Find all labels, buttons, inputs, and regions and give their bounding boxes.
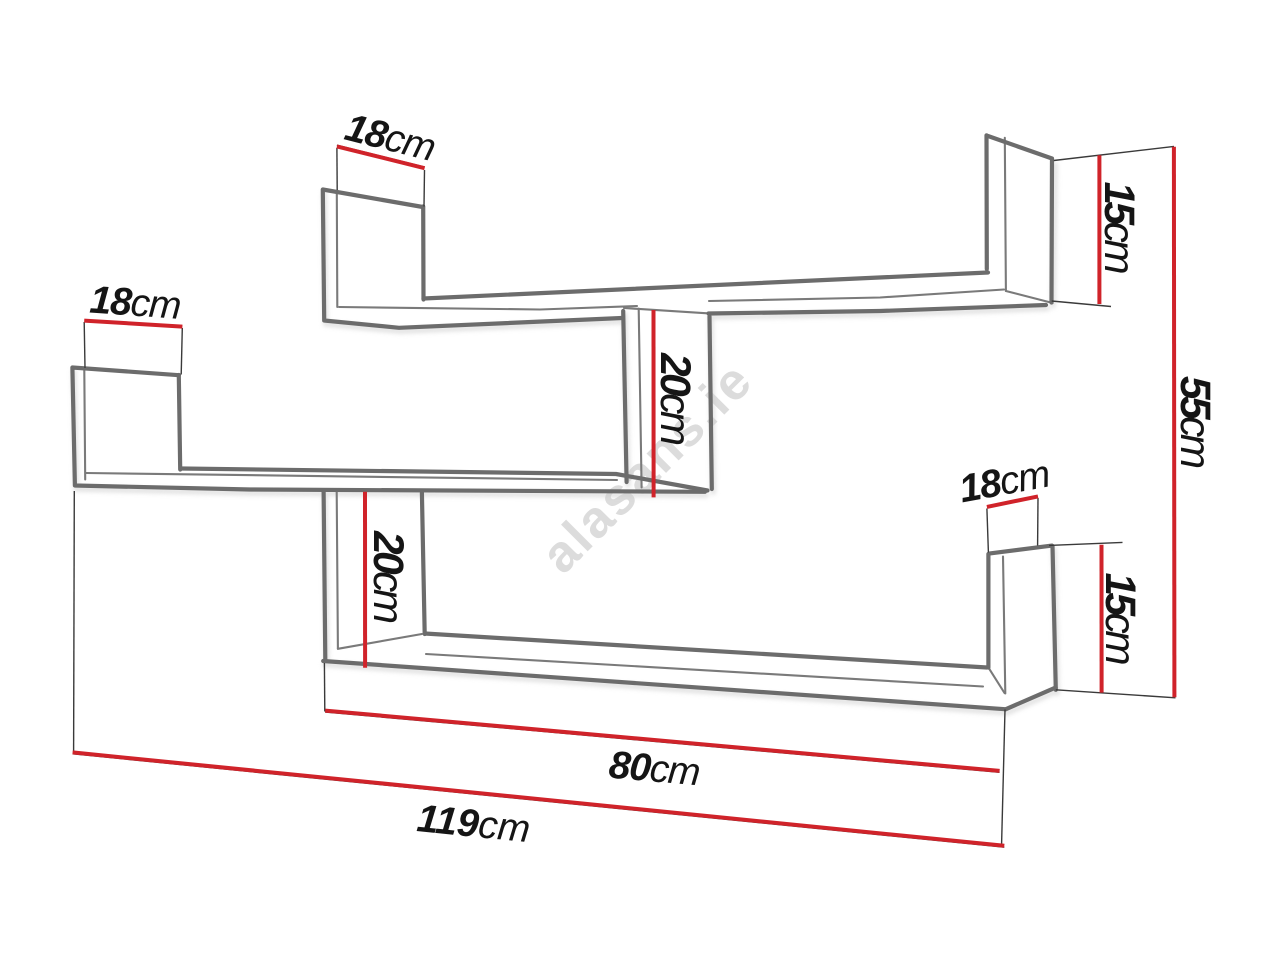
svg-text:15cm: 15cm	[1095, 182, 1142, 274]
svg-text:55cm: 55cm	[1171, 376, 1218, 468]
svg-text:20cm: 20cm	[364, 530, 411, 623]
svg-text:20cm: 20cm	[651, 352, 698, 445]
svg-text:18cm: 18cm	[88, 279, 181, 328]
svg-text:80cm: 80cm	[607, 744, 701, 795]
svg-text:15cm: 15cm	[1096, 573, 1143, 665]
